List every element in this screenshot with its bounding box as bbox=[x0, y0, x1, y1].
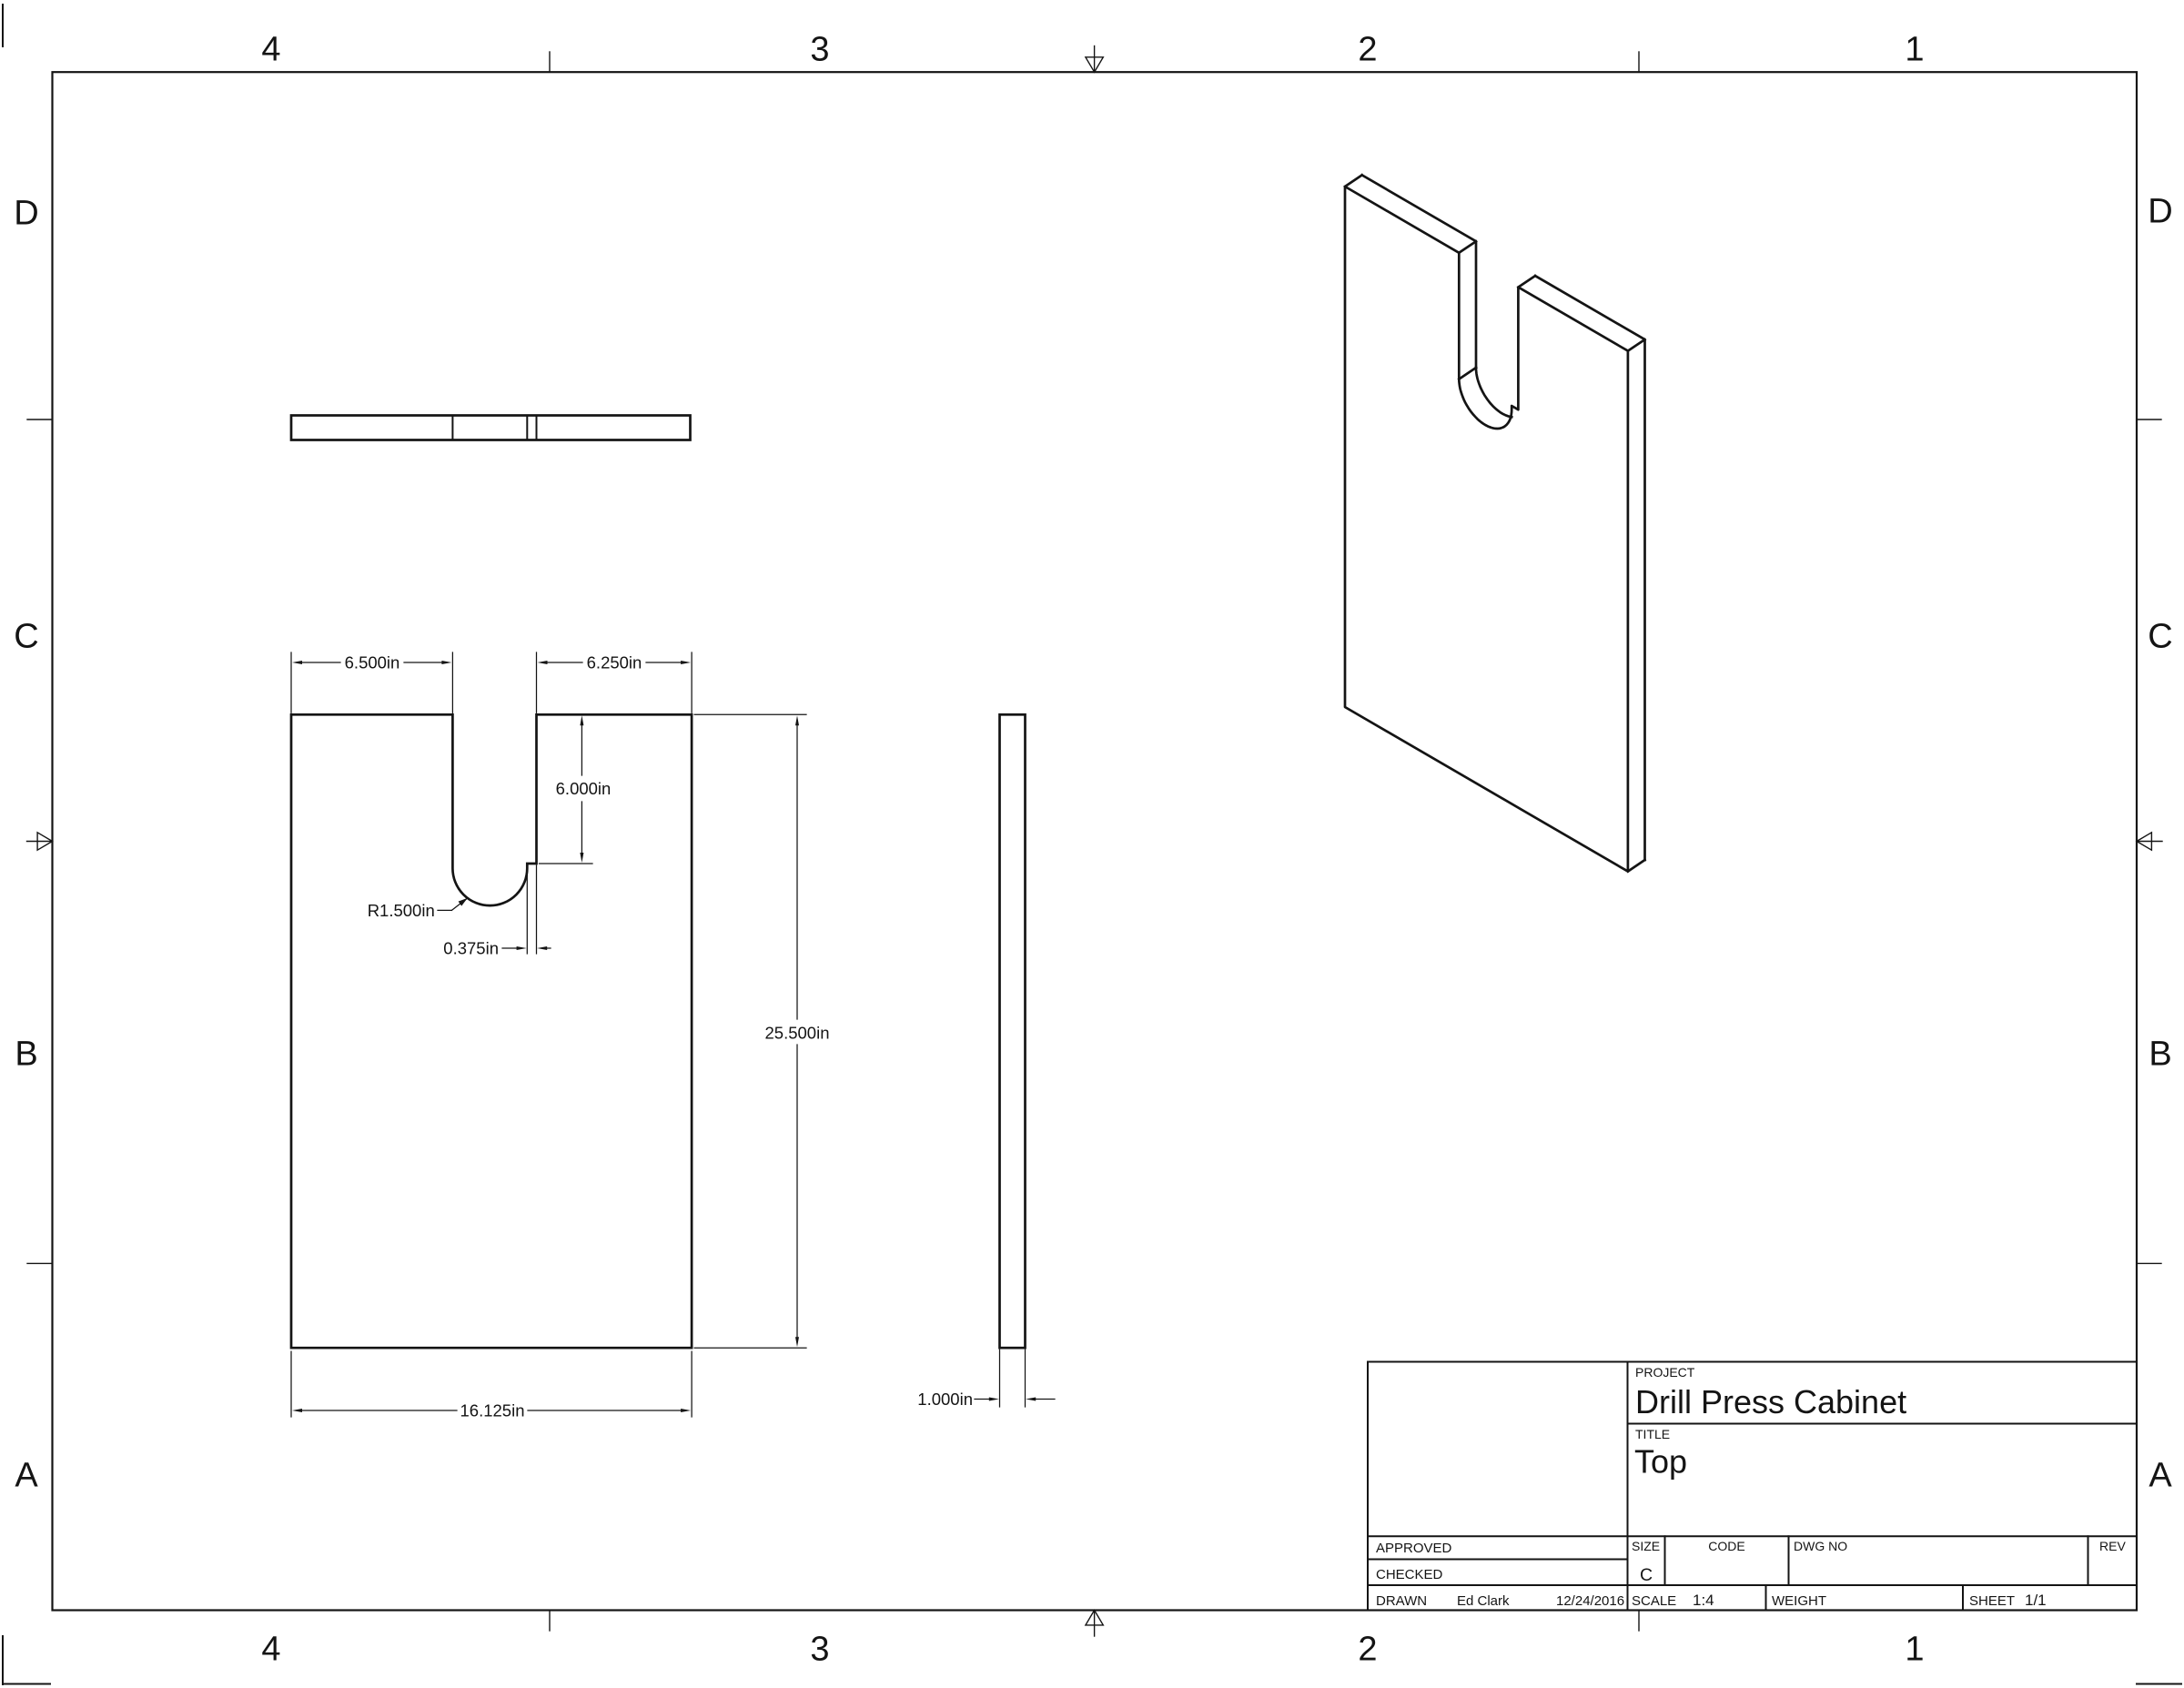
svg-text:B: B bbox=[15, 1036, 37, 1074]
svg-text:6.000in: 6.000in bbox=[556, 779, 612, 798]
svg-text:A: A bbox=[15, 1457, 38, 1495]
svg-text:WEIGHT: WEIGHT bbox=[1772, 1593, 1826, 1609]
svg-text:SHEET: SHEET bbox=[1969, 1593, 2015, 1609]
svg-text:3: 3 bbox=[810, 31, 829, 69]
svg-text:A: A bbox=[2149, 1457, 2172, 1495]
svg-text:16.125in: 16.125in bbox=[460, 1401, 525, 1420]
svg-text:R1.500in: R1.500in bbox=[368, 901, 435, 920]
svg-text:1/1: 1/1 bbox=[2025, 1592, 2047, 1609]
svg-text:C: C bbox=[14, 618, 38, 656]
svg-text:DRAWN: DRAWN bbox=[1376, 1593, 1427, 1609]
svg-text:1: 1 bbox=[1905, 1631, 1924, 1669]
svg-text:6.500in: 6.500in bbox=[345, 653, 400, 672]
svg-text:3: 3 bbox=[810, 1631, 829, 1669]
svg-text:Ed Clark: Ed Clark bbox=[1457, 1593, 1510, 1609]
svg-text:D: D bbox=[2148, 193, 2172, 231]
svg-text:Top: Top bbox=[1634, 1443, 1687, 1481]
svg-text:CODE: CODE bbox=[1708, 1539, 1744, 1553]
svg-text:SCALE: SCALE bbox=[1632, 1593, 1676, 1609]
svg-text:CHECKED: CHECKED bbox=[1376, 1567, 1443, 1582]
svg-text:1.000in: 1.000in bbox=[917, 1390, 973, 1409]
svg-text:C: C bbox=[2148, 618, 2172, 656]
svg-text:B: B bbox=[2149, 1036, 2171, 1074]
svg-text:2: 2 bbox=[1358, 31, 1377, 69]
svg-text:D: D bbox=[14, 195, 38, 233]
svg-text:1: 1 bbox=[1905, 31, 1924, 69]
svg-text:DWG NO: DWG NO bbox=[1794, 1539, 1847, 1553]
svg-text:4: 4 bbox=[261, 1631, 280, 1669]
svg-text:TITLE: TITLE bbox=[1635, 1427, 1670, 1441]
svg-text:4: 4 bbox=[261, 31, 280, 69]
svg-text:APPROVED: APPROVED bbox=[1376, 1541, 1452, 1556]
svg-text:Drill Press Cabinet: Drill Press Cabinet bbox=[1635, 1383, 1906, 1420]
svg-text:1:4: 1:4 bbox=[1693, 1592, 1714, 1609]
svg-text:12/24/2016: 12/24/2016 bbox=[1556, 1593, 1624, 1609]
svg-text:25.500in: 25.500in bbox=[765, 1023, 830, 1042]
svg-text:0.375in: 0.375in bbox=[443, 939, 499, 958]
svg-text:6.250in: 6.250in bbox=[587, 653, 642, 672]
svg-text:PROJECT: PROJECT bbox=[1635, 1365, 1695, 1380]
svg-text:SIZE: SIZE bbox=[1632, 1539, 1660, 1553]
svg-text:C: C bbox=[1640, 1565, 1653, 1585]
svg-text:2: 2 bbox=[1358, 1631, 1377, 1669]
svg-text:REV: REV bbox=[2099, 1539, 2126, 1553]
